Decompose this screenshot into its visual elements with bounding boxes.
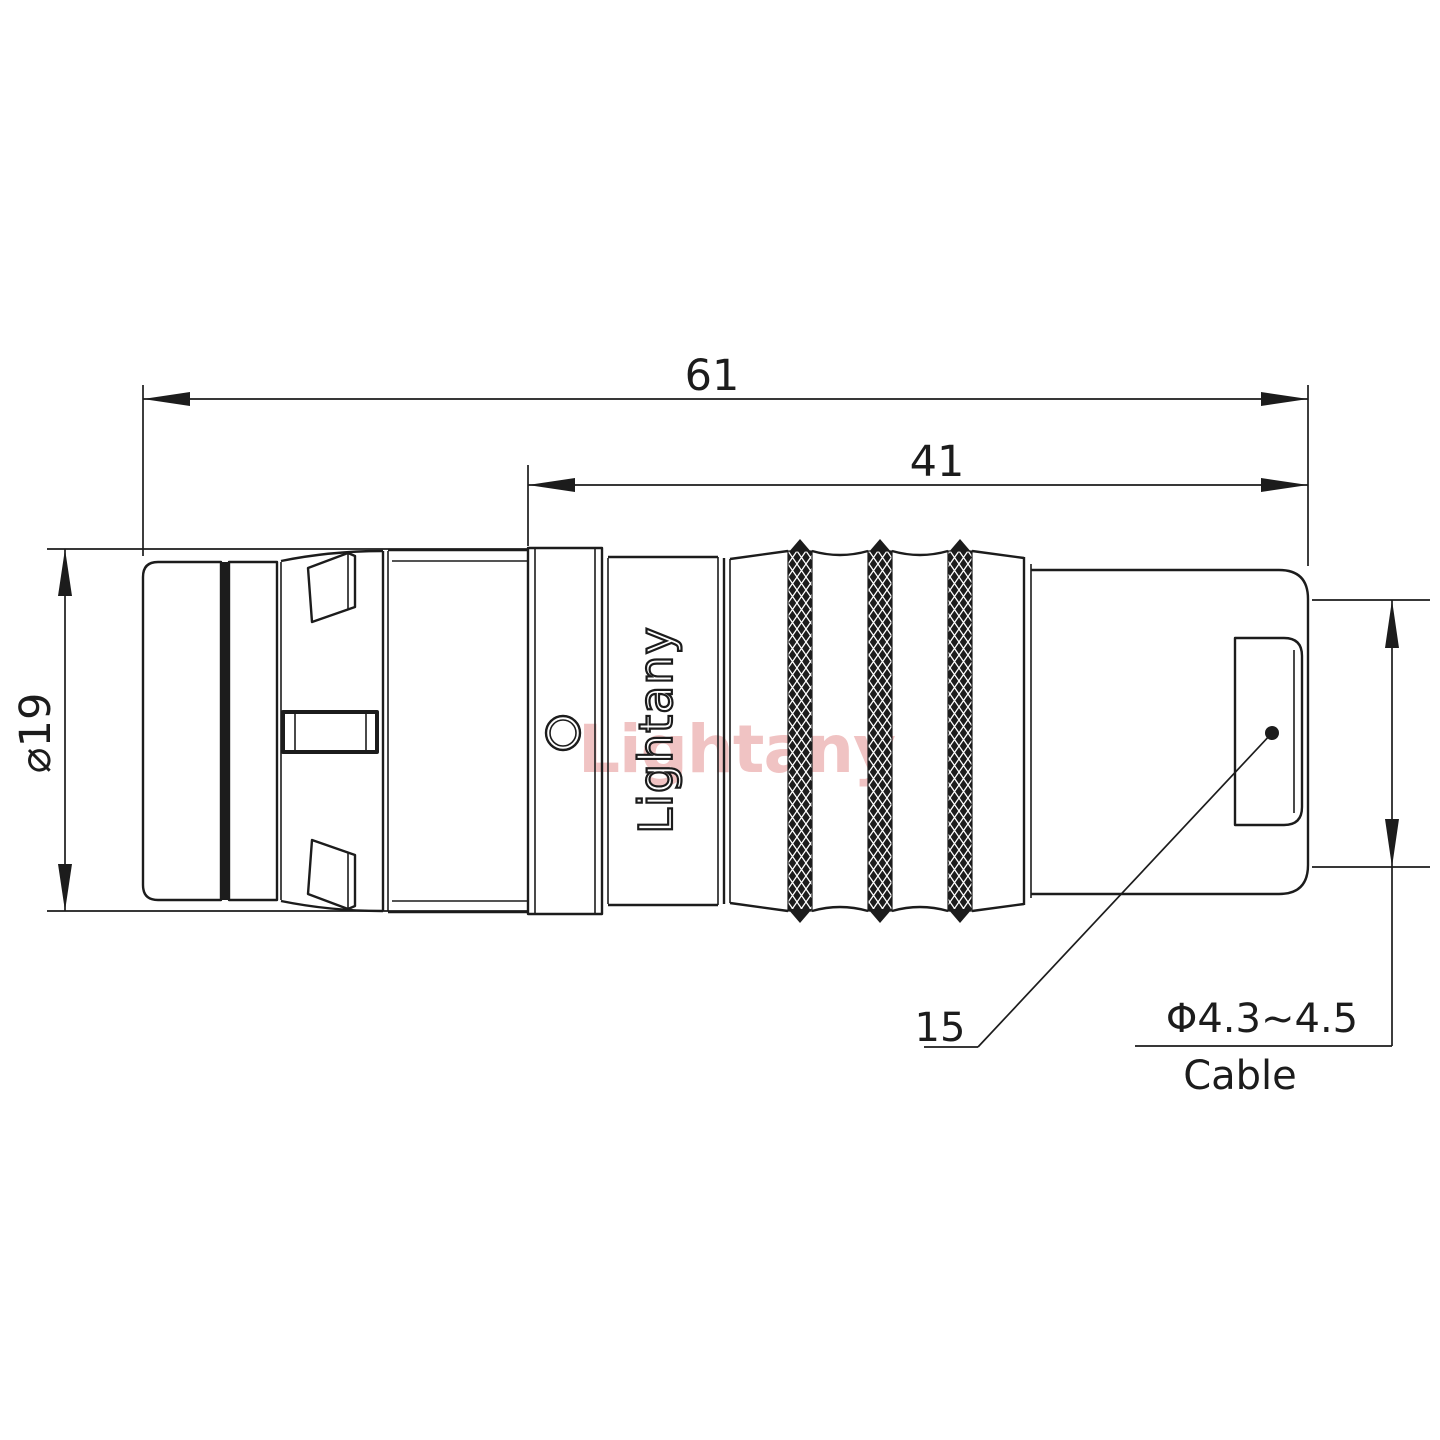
connector-drawing: Lightany xyxy=(0,0,1440,1440)
cable-word-label: Cable xyxy=(1183,1053,1297,1099)
dim61-label: 61 xyxy=(685,351,740,401)
technical-drawing-page: Lightany xyxy=(0,0,1440,1440)
watermark-text: Lightany xyxy=(578,711,895,788)
knurl-strip-3 xyxy=(948,539,972,923)
dim19-label: ⌀19 xyxy=(11,693,61,774)
knurl-strip-1 xyxy=(788,539,812,923)
engraved-brand-text: Lightany xyxy=(629,626,683,833)
callout15-label: 15 xyxy=(915,1005,966,1051)
dim41-label: 41 xyxy=(910,437,965,487)
knurl-strip-2 xyxy=(868,539,892,923)
cable-diameter-label: Φ4.3~4.5 xyxy=(1166,996,1358,1042)
latch-window xyxy=(283,712,377,752)
